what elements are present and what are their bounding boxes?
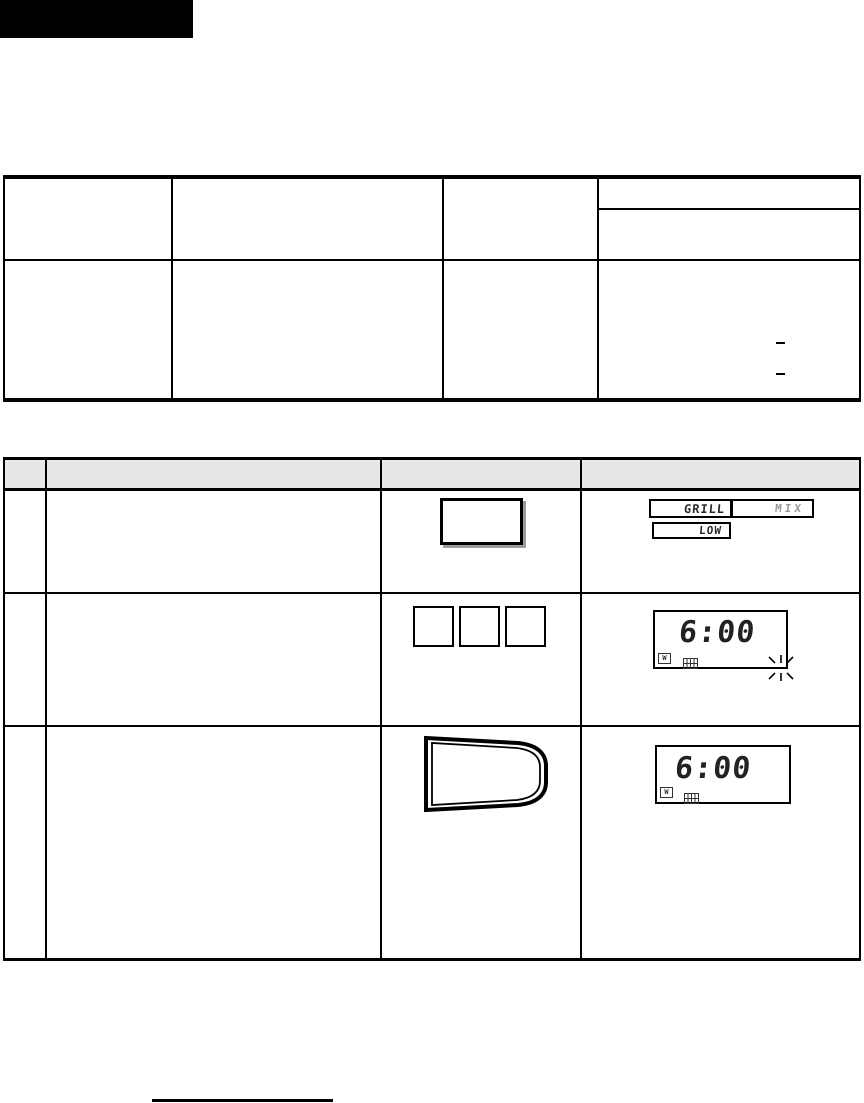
table1-col-divider-2 (442, 175, 444, 402)
display-segment-mix-label: MIX (775, 502, 805, 515)
flashing-rays-icon (767, 655, 795, 681)
manual-page: GRILL MIX LOW 6:00 W 6:0 (0, 0, 864, 1103)
table1-row-divider (3, 259, 861, 261)
lcd-display-step2: 6:00 W (653, 610, 788, 669)
table2-top-border (3, 457, 861, 460)
grill-icon (684, 793, 699, 804)
watt-icon: W (658, 653, 671, 664)
table2-left-border (3, 457, 5, 961)
watt-icon: W (660, 787, 673, 798)
table1-top-border (3, 175, 861, 179)
display-segment-grill-label: GRILL (683, 502, 725, 516)
fraction-bar (776, 373, 785, 375)
start-button-illustration (420, 732, 555, 816)
title-banner-block (0, 0, 193, 38)
table2-row-divider-2 (3, 725, 861, 727)
display-segment-low: LOW (652, 522, 731, 539)
table2-col-divider-2 (380, 457, 382, 961)
lcd-display-step3: 6:00 W (655, 745, 791, 804)
table1-subcell-divider (597, 208, 861, 210)
footnote-rule (152, 1099, 333, 1102)
grill-icon (683, 658, 698, 669)
table1-col-divider-1 (171, 175, 173, 402)
table2-col-divider-1 (45, 457, 47, 961)
table2-bottom-border (3, 958, 861, 961)
table2-header-divider (3, 488, 861, 491)
display-segment-mix: MIX (731, 499, 814, 518)
steps-table-header-row (5, 460, 859, 489)
lcd-time-step3: 6:00 (673, 754, 752, 784)
display-segment-grill: GRILL (649, 499, 732, 518)
display-segment-low-label: LOW (699, 524, 723, 537)
number-button-illustration-1 (413, 606, 454, 647)
table1-left-border (3, 175, 5, 402)
table2-row-divider-1 (3, 592, 861, 594)
table2-col-divider-3 (580, 457, 582, 961)
number-button-illustration-3 (505, 606, 546, 647)
table1-bottom-border (3, 398, 861, 402)
number-button-illustration-2 (459, 606, 500, 647)
table2-right-border (859, 457, 861, 961)
lcd-time-step2: 6:00 (677, 618, 756, 648)
grill-mode-button-illustration (440, 498, 523, 545)
fraction-bar (776, 342, 785, 344)
